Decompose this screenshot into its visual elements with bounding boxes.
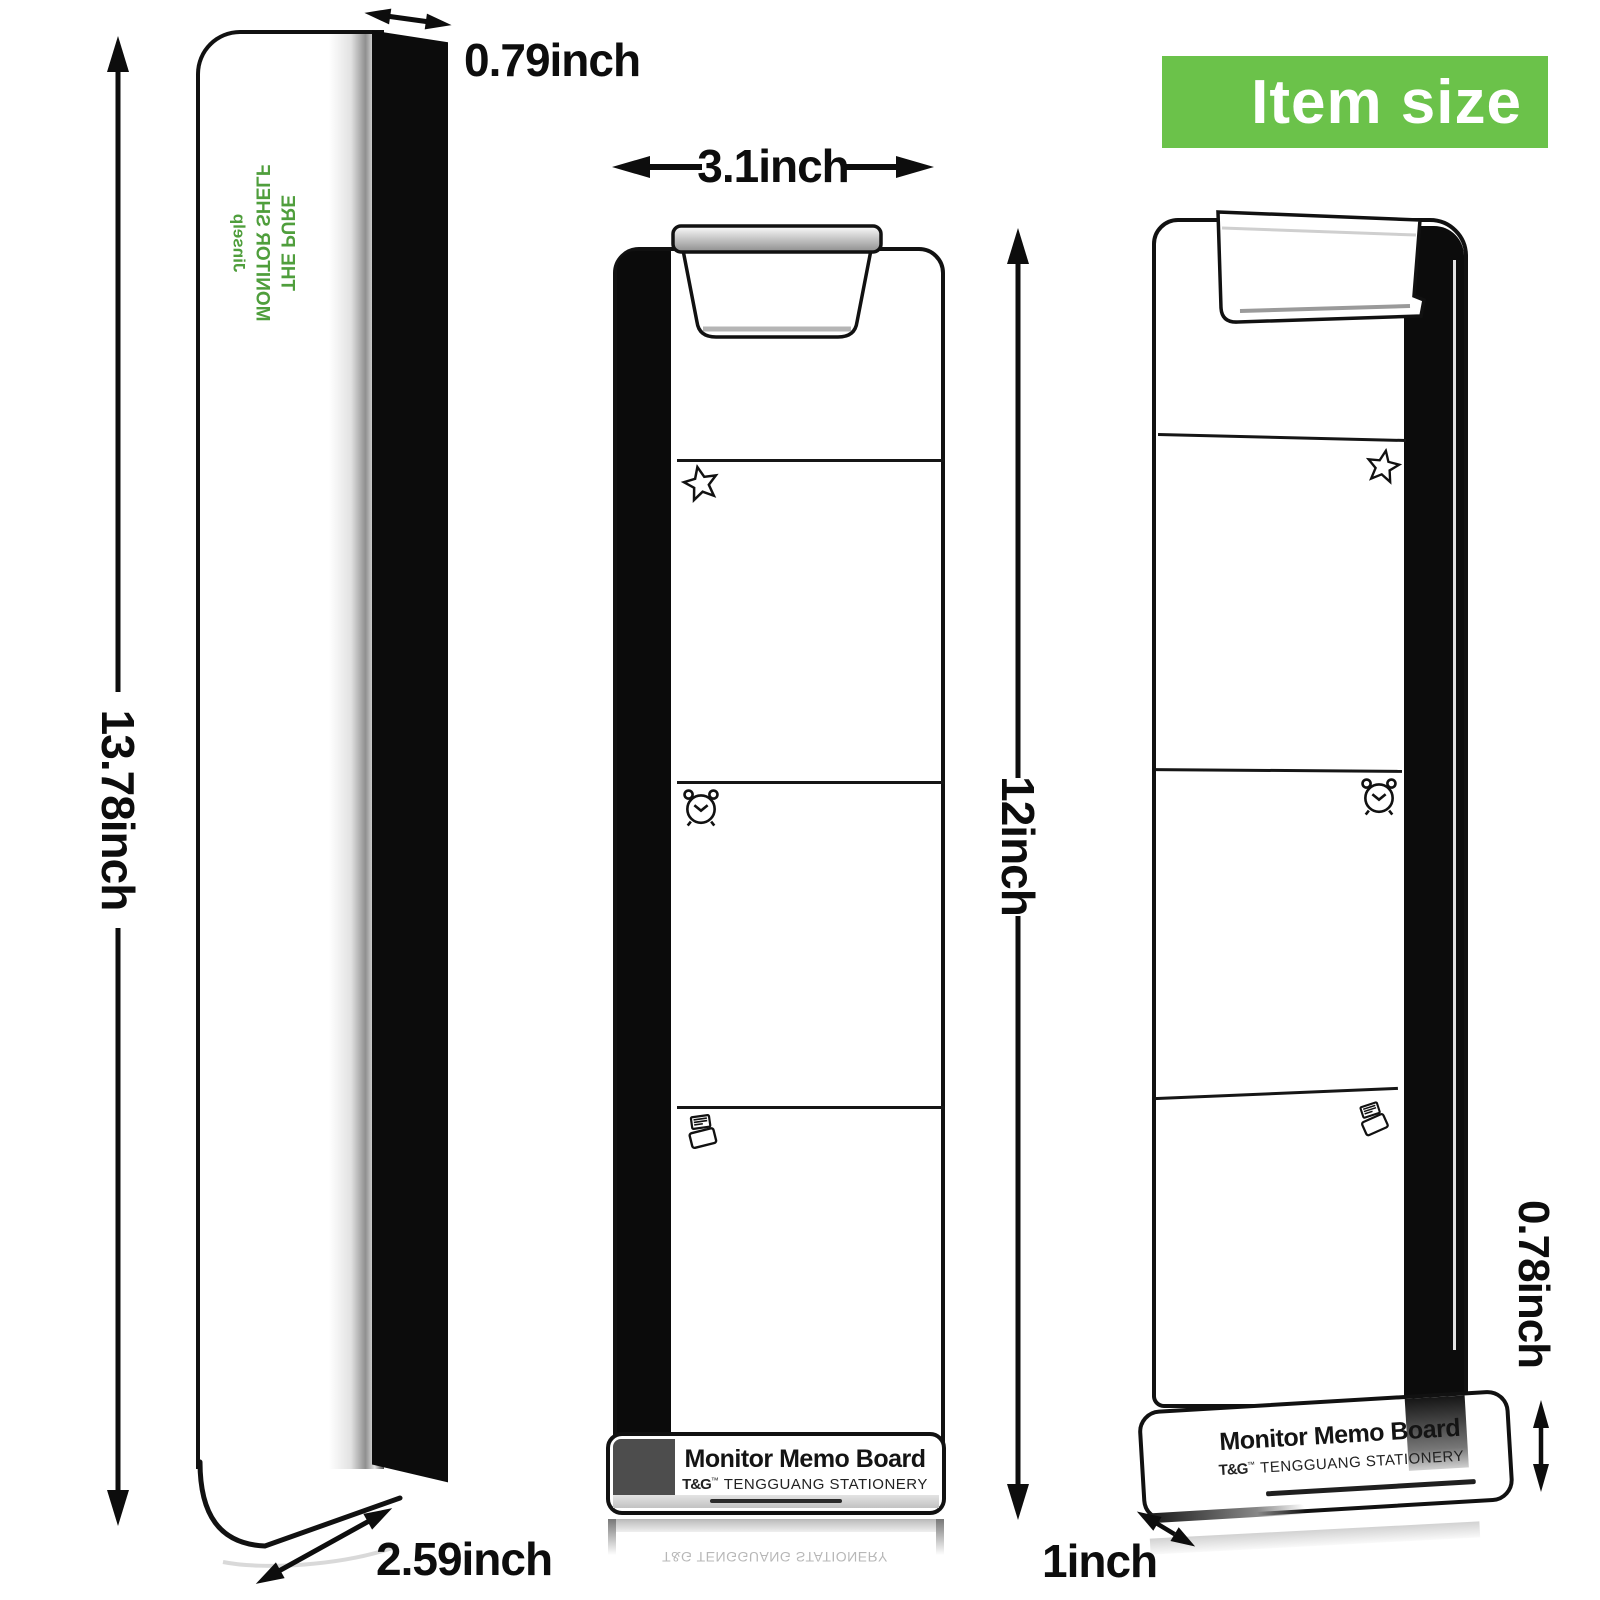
alarm-clock-icon <box>680 786 722 828</box>
reflection-edge-right <box>936 1519 944 1555</box>
top-depth-dimension-label: 0.79inch <box>464 33 640 87</box>
star-icon <box>1361 445 1405 489</box>
section-divider-3 <box>677 1106 944 1109</box>
section-divider-1 <box>677 459 944 462</box>
brand-logo: T&G <box>682 1476 711 1493</box>
brand-logo: T&G <box>1218 1460 1248 1479</box>
monitor-clip-front <box>655 218 895 358</box>
reflection-edge-left <box>608 1519 616 1555</box>
base-depth-dimension-label: 1inch <box>1042 1534 1157 1588</box>
monitor-clip-perspective <box>1192 190 1502 340</box>
brand-name: TENGGUANG STATIONERY <box>724 1476 928 1493</box>
front-height-dimension-label: 12inch <box>991 776 1045 916</box>
tray-stripe-block <box>613 1439 675 1495</box>
section-divider-2 <box>677 781 944 784</box>
message-icon <box>684 1113 722 1151</box>
tray-slot <box>710 1499 842 1503</box>
tray-brand-line: T&G™ TENGGUANG STATIONERY <box>676 1476 934 1493</box>
tray-front: Monitor Memo Board T&G™ TENGGUANG STATIO… <box>606 1432 946 1515</box>
stripe-highlight-line <box>1453 260 1456 1350</box>
alarm-clock-icon <box>1358 775 1400 817</box>
top-depth-dimension-arrow <box>356 2 460 36</box>
item-size-banner: Item size <box>1162 56 1548 148</box>
width-dimension-label: 3.1inch <box>697 139 849 193</box>
panel-text-line2: MONITOR SHELF <box>249 165 274 322</box>
panel-text-line1: THE PURE <box>274 165 299 322</box>
trademark-symbol: ™ <box>711 1476 720 1485</box>
trademark-symbol: ™ <box>1247 1460 1256 1469</box>
reflection-text: T&G TENGGUANG STATIONERY <box>662 1549 888 1565</box>
product-size-diagram: Item size 13.78inch THE PURE MONITOR SHE… <box>0 0 1600 1600</box>
message-icon <box>1353 1098 1395 1140</box>
board-black-stripe-left <box>617 251 671 1433</box>
height-dimension-label: 13.78inch <box>91 710 145 911</box>
bottom-depth-dimension-label: 2.59inch <box>376 1532 552 1586</box>
tray-height-dimension-label: 0.78inch <box>1508 1200 1558 1368</box>
tray-bottom-strip <box>613 1495 939 1508</box>
panel-printed-text: THE PURE MONITOR SHELF Jinselp <box>227 165 300 322</box>
tray-slot <box>1266 1479 1476 1496</box>
reflection-bar <box>609 1519 943 1532</box>
tray-title: Monitor Memo Board <box>676 1445 934 1474</box>
side-panel-black-edge <box>372 26 448 1506</box>
banner-label: Item size <box>1251 67 1522 138</box>
panel-text-line3: Jinselp <box>227 165 249 322</box>
star-icon <box>677 460 724 507</box>
tray-height-dimension-arrow <box>1521 1396 1563 1496</box>
